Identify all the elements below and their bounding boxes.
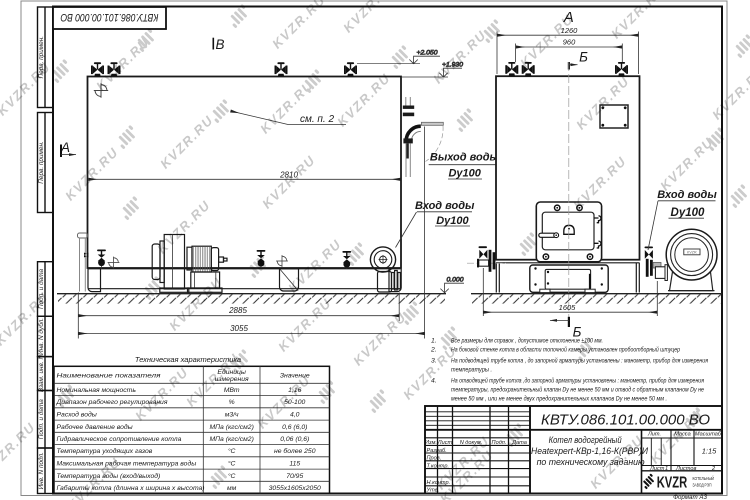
svg-text:3055х1605х2050: 3055х1605х2050 bbox=[269, 485, 321, 492]
svg-text:+2.050: +2.050 bbox=[417, 49, 438, 56]
svg-text:Лист: Лист bbox=[437, 440, 453, 446]
svg-text:Наименование показателя: Наименование показателя bbox=[57, 372, 161, 379]
svg-text:Пров.: Пров. bbox=[427, 456, 442, 462]
svg-text:3055: 3055 bbox=[230, 324, 248, 333]
svg-text:Б: Б bbox=[579, 50, 588, 65]
svg-text:Максимальная рабочая температу: Максимальная рабочая температура воды bbox=[57, 460, 197, 468]
svg-text:Инв. N дубл.: Инв. N дубл. bbox=[37, 318, 45, 355]
svg-text:В: В bbox=[215, 37, 224, 52]
svg-text:м3/ч: м3/ч bbox=[225, 412, 239, 419]
svg-text:Утв.: Утв. bbox=[426, 488, 440, 494]
svg-text:2.: 2. bbox=[430, 346, 437, 353]
svg-text:Вход воды: Вход воды bbox=[415, 200, 475, 212]
svg-text:Инв. N подл.: Инв. N подл. bbox=[37, 452, 45, 489]
svg-text:Формат А3: Формат А3 bbox=[673, 494, 707, 500]
svg-text:1:15: 1:15 bbox=[702, 447, 717, 456]
svg-text:КОТЕЛЬНЫЙ: КОТЕЛЬНЫЙ bbox=[693, 474, 715, 481]
svg-text:температуры .: температуры . bbox=[451, 366, 492, 373]
svg-text:Все размеры для справок , допу: Все размеры для справок , допустимое отк… bbox=[451, 337, 603, 345]
svg-text:0.000: 0.000 bbox=[446, 276, 463, 283]
svg-text:°С: °С bbox=[228, 460, 236, 468]
svg-text:температуры, предохранительный: температуры, предохранительный клапан Dу… bbox=[451, 385, 704, 393]
svg-text:115: 115 bbox=[289, 461, 300, 468]
svg-text:МПа (кгс/см2): МПа (кгс/см2) bbox=[209, 424, 253, 431]
svg-text:Dy100: Dy100 bbox=[436, 215, 469, 227]
svg-text:КВТУ.086.101.00.000 ВО: КВТУ.086.101.00.000 ВО bbox=[60, 11, 158, 23]
svg-text:см. п. 2: см. п. 2 bbox=[300, 114, 334, 125]
svg-text:Листов: Листов bbox=[675, 466, 696, 472]
svg-text:МВт: МВт bbox=[224, 387, 240, 394]
svg-text:мм: мм bbox=[227, 485, 237, 492]
svg-text:70/95: 70/95 bbox=[286, 473, 303, 480]
svg-text:МПа (кгс/см2): МПа (кгс/см2) bbox=[209, 436, 253, 443]
svg-text:Выход воды: Выход воды bbox=[430, 152, 500, 164]
svg-text:Гидравлическое сопротивление к: Гидравлическое сопротивление котла bbox=[57, 435, 182, 443]
svg-text:1: 1 bbox=[665, 466, 668, 472]
svg-text:Изм.: Изм. bbox=[425, 440, 437, 446]
svg-text:На боковой стенке котла в обла: На боковой стенке котла в области топочн… bbox=[451, 345, 680, 353]
svg-text:°С: °С bbox=[228, 447, 236, 455]
svg-text:%: % bbox=[229, 399, 235, 406]
svg-text:не более 250: не более 250 bbox=[274, 447, 316, 455]
svg-text:Масштаб: Масштаб bbox=[695, 432, 722, 438]
svg-text:KVZR: KVZR bbox=[687, 251, 697, 255]
svg-text:1605: 1605 bbox=[559, 303, 577, 312]
svg-text:Котел водогрейный: Котел водогрейный bbox=[549, 435, 622, 445]
svg-text:Температура уходящих газов: Температура уходящих газов bbox=[57, 447, 153, 455]
svg-text:На отводящей трубе котла ,до з: На отводящей трубе котла ,до запорной ар… bbox=[451, 376, 704, 384]
svg-text:Подп. и дата: Подп. и дата bbox=[37, 399, 45, 439]
svg-text:960: 960 bbox=[563, 38, 576, 47]
svg-text:менее 50 мм , или не менее дв: менее 50 мм , или не менее двух предохра… bbox=[451, 394, 667, 402]
svg-text:Подп.: Подп. bbox=[492, 440, 507, 446]
svg-text:Взам. инв. N: Взам. инв. N bbox=[38, 355, 45, 393]
svg-text:KVZR: KVZR bbox=[657, 475, 688, 492]
svg-text:4,0: 4,0 bbox=[290, 412, 300, 419]
svg-text:Рабочее давление воды: Рабочее давление воды bbox=[57, 423, 133, 431]
svg-text:ЗАВОД РЭП: ЗАВОД РЭП bbox=[693, 483, 712, 488]
svg-text:1.: 1. bbox=[431, 338, 437, 345]
svg-text:°С: °С bbox=[228, 472, 236, 480]
svg-text:2885: 2885 bbox=[228, 306, 247, 315]
svg-text:Лит.: Лит. bbox=[647, 432, 661, 438]
svg-text:0,6 (6,0): 0,6 (6,0) bbox=[282, 424, 307, 431]
svg-text:Dy100: Dy100 bbox=[671, 207, 705, 219]
svg-text:Расход воды: Расход воды bbox=[57, 411, 97, 419]
svg-text:Dy100: Dy100 bbox=[448, 168, 481, 180]
svg-text:Разраб.: Разраб. bbox=[427, 448, 447, 454]
svg-text:0,06 (0,6): 0,06 (0,6) bbox=[280, 436, 309, 443]
svg-text:Перв. примен.: Перв. примен. bbox=[38, 141, 45, 183]
